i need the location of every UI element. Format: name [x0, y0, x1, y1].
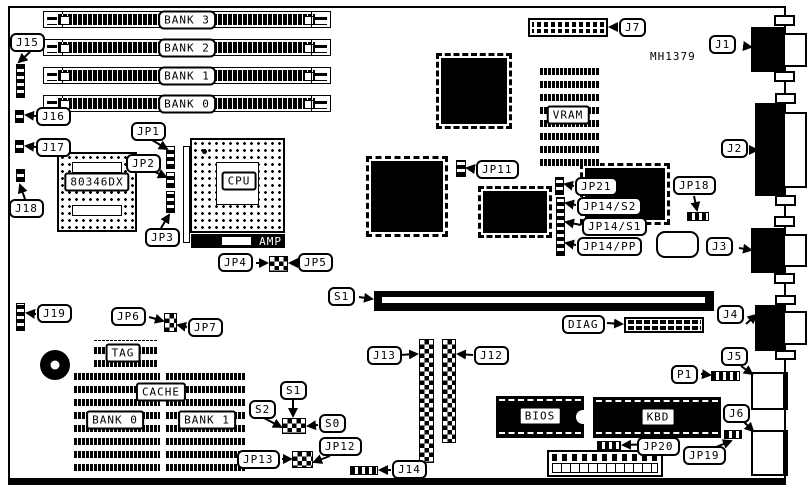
callout-j14: J14 [392, 460, 427, 479]
callout-jp14-s1: JP14/S1 [582, 217, 647, 236]
callout-j18: J18 [9, 199, 44, 218]
callout-j6: J6 [723, 404, 750, 423]
callout-jp2: JP2 [126, 154, 161, 173]
motherboard-diagram: BANK 3 BANK 2 BANK 1 BANK 0 J15 J16 J17 … [0, 0, 808, 490]
callout-jp5: JP5 [298, 253, 333, 272]
callout-jp12: JP12 [319, 437, 362, 456]
callout-s2: S2 [249, 400, 276, 419]
board-part-number: MH1379 [650, 50, 696, 63]
callout-jp20: JP20 [637, 437, 680, 456]
simm-bank3-label: BANK 3 [158, 11, 216, 30]
callout-j1: J1 [709, 35, 736, 54]
callout-j7: J7 [619, 18, 646, 37]
callout-j5: J5 [721, 347, 748, 366]
simm-bank2-label: BANK 2 [158, 39, 216, 58]
callout-j13: J13 [367, 346, 402, 365]
cpu-label: CPU [222, 172, 257, 191]
callout-j17: J17 [36, 138, 71, 157]
callout-jp21: JP21 [575, 177, 618, 196]
callout-jp13: JP13 [237, 450, 280, 469]
cache-label: CACHE [136, 383, 186, 402]
callout-jp14-s2: JP14/S2 [577, 197, 642, 216]
callout-jp18: JP18 [673, 176, 716, 195]
callout-j3: J3 [706, 237, 733, 256]
callout-jp19: JP19 [683, 446, 726, 465]
tag-label: TAG [106, 344, 141, 363]
callout-jp4: JP4 [218, 253, 253, 272]
coprocessor-label: 80346DX [64, 173, 129, 192]
callout-jp14-pp: JP14/PP [577, 237, 642, 256]
bios-label: BIOS [519, 407, 562, 426]
callout-j2: J2 [721, 139, 748, 158]
callout-p1: P1 [671, 365, 698, 384]
callout-jp3: JP3 [145, 228, 180, 247]
cache-bank0-label: BANK 0 [86, 411, 144, 430]
callout-j4: J4 [717, 305, 744, 324]
callout-j15: J15 [10, 33, 45, 52]
cache-bank1-label: BANK 1 [178, 411, 236, 430]
callout-j12: J12 [474, 346, 509, 365]
kbd-label: KBD [641, 408, 676, 427]
callout-diag: DIAG [562, 315, 605, 334]
callout-s1-slot: S1 [328, 287, 355, 306]
simm-bank1-label: BANK 1 [158, 67, 216, 86]
callout-jp1: JP1 [131, 122, 166, 141]
callout-s0: S0 [319, 414, 346, 433]
callout-j19: J19 [37, 304, 72, 323]
callout-jp11: JP11 [476, 160, 519, 179]
simm-bank0-label: BANK 0 [158, 95, 216, 114]
callout-jp7: JP7 [188, 318, 223, 337]
callout-j16: J16 [36, 107, 71, 126]
callout-jp6: JP6 [111, 307, 146, 326]
vram-label: VRAM [547, 106, 590, 125]
callout-s1: S1 [280, 381, 307, 400]
